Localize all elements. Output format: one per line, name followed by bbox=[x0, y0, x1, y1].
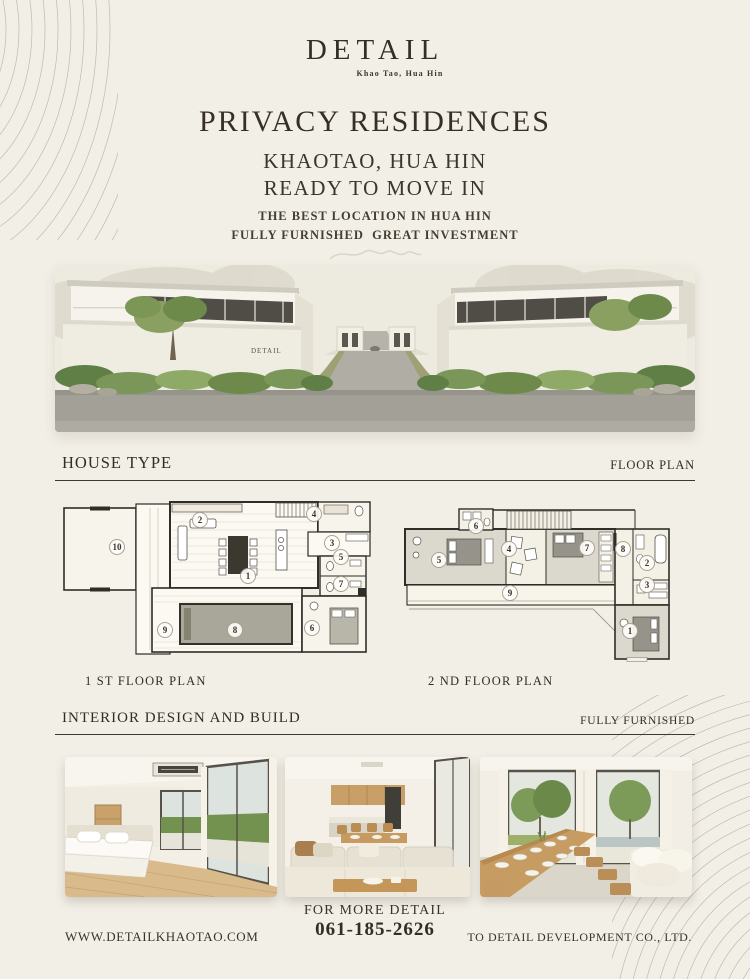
page-title: PRIVACY RESIDENCES bbox=[0, 105, 750, 139]
room-number-5: 5 bbox=[431, 552, 447, 568]
fridge bbox=[385, 787, 401, 829]
room-number-4: 4 bbox=[306, 506, 322, 522]
room-number-6: 6 bbox=[468, 518, 484, 534]
room-number-6: 6 bbox=[304, 620, 320, 636]
brand-logo: DETAIL bbox=[0, 34, 750, 67]
room-number-7: 7 bbox=[333, 576, 349, 592]
plan-1-label: 1 ST FLOOR PLAN bbox=[85, 674, 207, 689]
room-number-7: 7 bbox=[579, 540, 595, 556]
room-number-3: 3 bbox=[639, 577, 655, 593]
floor-plan-heading: FLOOR PLAN bbox=[610, 458, 695, 473]
subtitle-location: KHAOTAO, HUA HIN bbox=[0, 149, 750, 174]
mountain-sketch-squiggle bbox=[328, 243, 423, 267]
bedroom-photo bbox=[65, 757, 277, 897]
bed bbox=[65, 825, 153, 877]
room-number-1: 1 bbox=[240, 568, 256, 584]
room-number-9: 9 bbox=[157, 622, 173, 638]
coffee-table bbox=[333, 877, 417, 892]
floor-plan-2: 1 2 3 4 5 6 7 8 9 bbox=[403, 505, 671, 663]
room-number-4: 4 bbox=[501, 541, 517, 557]
brand-logo-tagline: Khao Tao, Hua Hin bbox=[0, 69, 750, 78]
window bbox=[161, 791, 205, 849]
footer-company: TO DETAIL DEVELOPMENT CO., LTD. bbox=[467, 930, 692, 945]
room-number-5: 5 bbox=[333, 549, 349, 565]
room-number-2: 2 bbox=[639, 555, 655, 571]
room-number-2: 2 bbox=[192, 512, 208, 528]
room-number-8: 8 bbox=[615, 541, 631, 557]
dining-room-photo bbox=[480, 757, 692, 897]
room-number-9: 9 bbox=[502, 585, 518, 601]
hero-image: DETAIL bbox=[55, 265, 695, 432]
footer-contact-label: FOR MORE DETAIL bbox=[0, 903, 750, 919]
floor-plan-1: 1 2 3 4 5 6 7 8 9 10 bbox=[62, 500, 372, 660]
bathtub bbox=[655, 535, 666, 563]
house-type-heading: HOUSE TYPE bbox=[62, 453, 172, 473]
corner-window bbox=[207, 760, 269, 884]
tagline-location: THE BEST LOCATION IN HUA HIN bbox=[0, 209, 750, 224]
room-number-10: 10 bbox=[109, 539, 125, 555]
white-sofa bbox=[630, 847, 692, 897]
interior-heading: INTERIOR DESIGN AND BUILD bbox=[62, 710, 301, 727]
subtitle-ready: READY TO MOVE IN bbox=[0, 176, 750, 201]
room-number-8: 8 bbox=[227, 622, 243, 638]
footer-website: WWW.DETAILKHAOTAO.COM bbox=[65, 929, 258, 945]
house-type-section-header: HOUSE TYPE FLOOR PLAN bbox=[55, 453, 695, 481]
brochure-page: DETAIL Khao Tao, Hua Hin PRIVACY RESIDEN… bbox=[0, 0, 750, 979]
interior-section-header: INTERIOR DESIGN AND BUILD FULLY FURNISHE… bbox=[55, 710, 695, 735]
tagline-investment: FULLY FURNISHED GREAT INVESTMENT bbox=[0, 228, 750, 243]
plan-2-label: 2 ND FLOOR PLAN bbox=[428, 674, 553, 689]
left-house: DETAIL bbox=[63, 280, 313, 377]
fully-furnished-heading: FULLY FURNISHED bbox=[580, 715, 695, 727]
room-number-1: 1 bbox=[622, 623, 638, 639]
gate-sign: DETAIL bbox=[251, 347, 282, 355]
living-room-photo bbox=[285, 757, 470, 897]
